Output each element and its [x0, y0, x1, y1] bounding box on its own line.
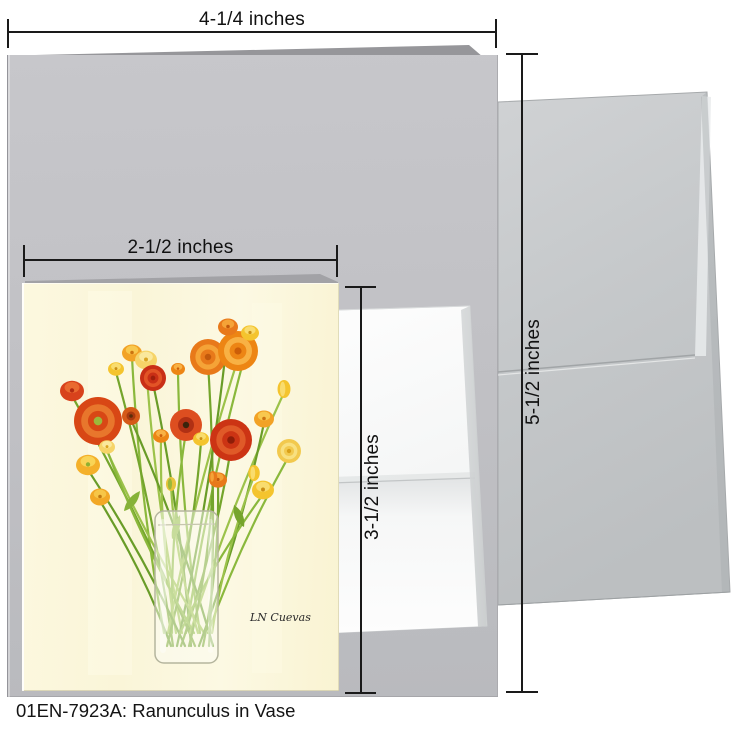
glass-vase: [155, 511, 218, 663]
flower: [193, 432, 209, 446]
dimension-tick: [345, 692, 376, 694]
dimension-tick: [506, 53, 538, 55]
mini-card: LN Cuevas: [22, 272, 339, 691]
mini-card-front: LN Cuevas: [22, 283, 339, 691]
flower: [210, 419, 252, 461]
dimension-tick: [7, 19, 9, 48]
caption: 01EN-7923A: Ranunculus in Vase: [16, 700, 295, 722]
dimension-artwork-width-label: 2-1/2 inches: [23, 237, 338, 259]
flower: [122, 407, 140, 425]
flower: [277, 439, 301, 463]
flower: [76, 455, 100, 475]
dimension-line: [7, 31, 497, 33]
dimension-card-height-label: 5-1/2 inches: [523, 319, 545, 425]
product-mockup: LN Cuevas 4-1/4 inches 5-1/2 inches 2-1/…: [0, 0, 738, 738]
flower: [74, 397, 122, 445]
dimension-tick: [506, 691, 538, 693]
flower: [252, 481, 274, 500]
flower: [218, 319, 238, 336]
flower: [140, 365, 166, 391]
dimension-line: [23, 259, 338, 261]
flower: [254, 411, 274, 428]
artist-signature: LN Cuevas: [249, 611, 311, 624]
flower: [108, 362, 124, 376]
flower: [209, 471, 218, 483]
flower: [153, 429, 169, 443]
flower: [99, 440, 115, 454]
dimension-tick: [495, 19, 497, 48]
dimension-tick: [345, 286, 376, 288]
dimension-card-width-label: 4-1/4 inches: [7, 9, 497, 31]
dimension-artwork-height-label: 3-1/2 inches: [362, 434, 384, 540]
flower: [171, 363, 185, 375]
flower: [241, 325, 259, 340]
flower: [278, 380, 291, 398]
artwork: LN Cuevas: [22, 283, 339, 691]
dimension-tick: [336, 245, 338, 277]
flower: [248, 465, 260, 481]
dimension-tick: [23, 245, 25, 277]
flower: [90, 489, 110, 506]
flower: [60, 381, 84, 401]
flower: [166, 477, 176, 491]
